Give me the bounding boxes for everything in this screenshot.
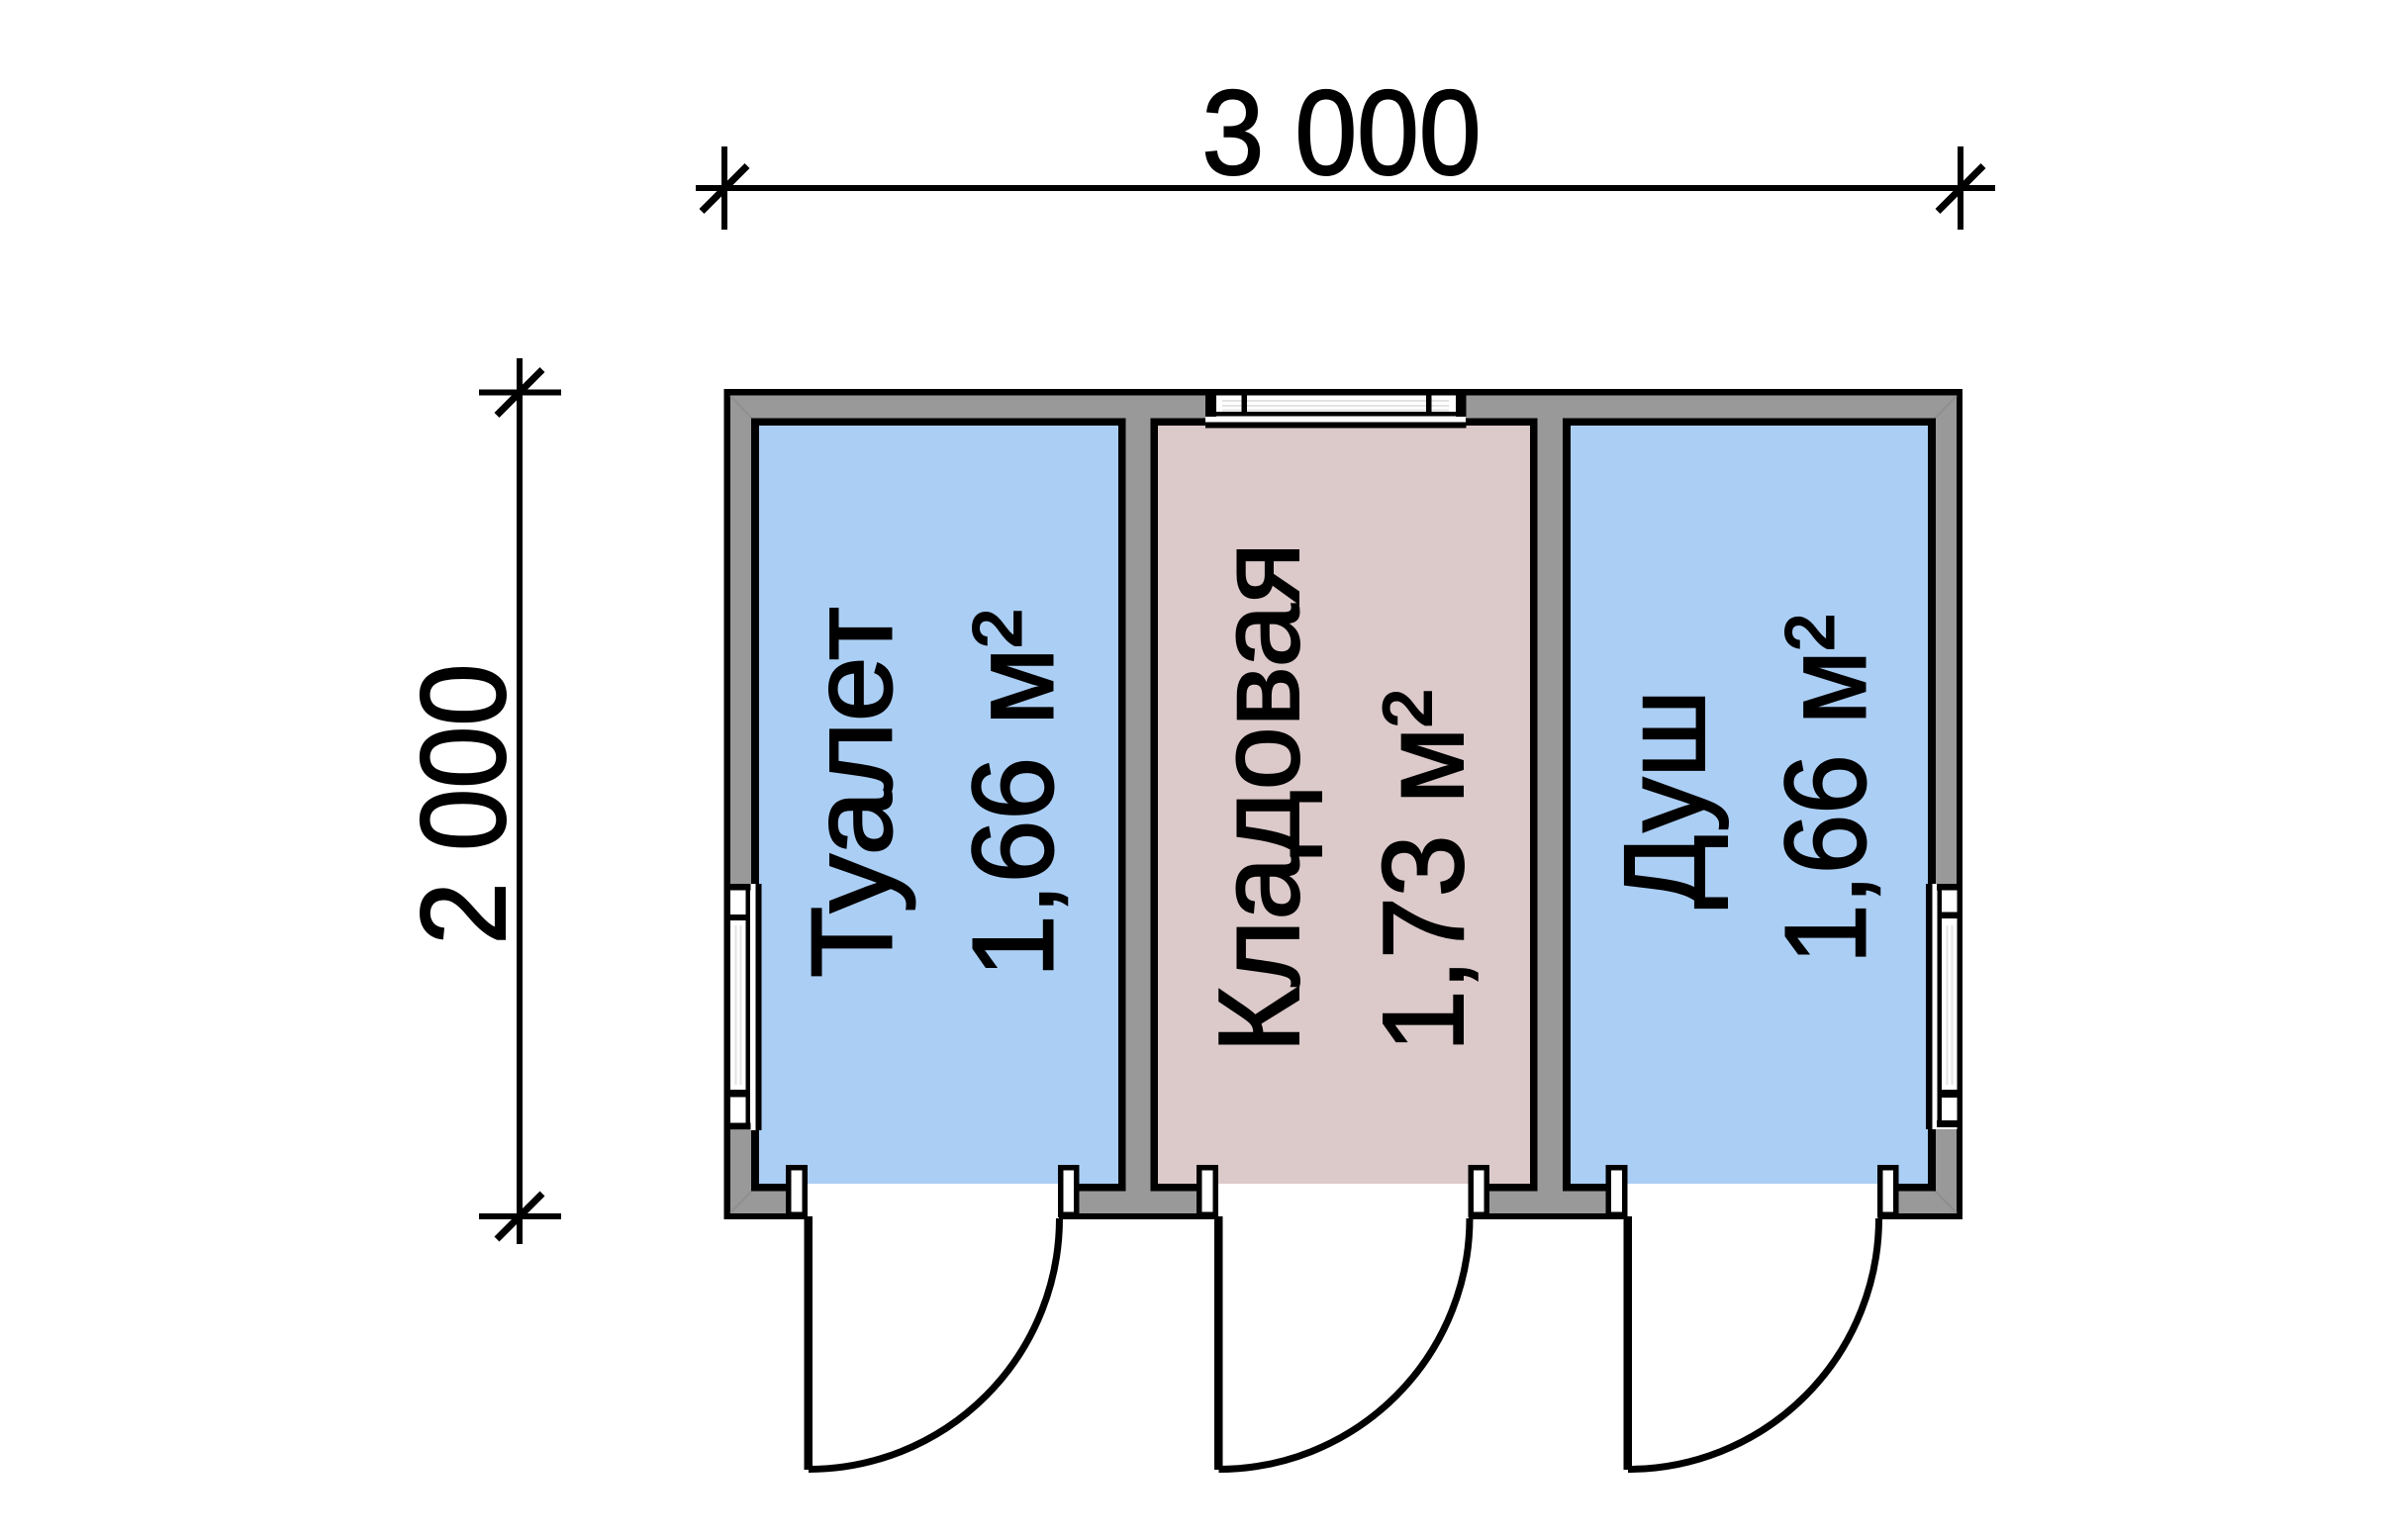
svg-text:Туалет: Туалет: [788, 607, 916, 978]
svg-text:3 000: 3 000: [1202, 65, 1482, 200]
svg-text:Кладовая: Кладовая: [1195, 542, 1323, 1053]
svg-text:1,66 м²: 1,66 м²: [949, 610, 1078, 978]
svg-text:1,66 м²: 1,66 м²: [1762, 615, 1890, 964]
svg-text:1,73 м²: 1,73 м²: [1359, 690, 1487, 1052]
svg-text:2 000: 2 000: [396, 664, 530, 945]
svg-text:Душ: Душ: [1600, 690, 1729, 909]
